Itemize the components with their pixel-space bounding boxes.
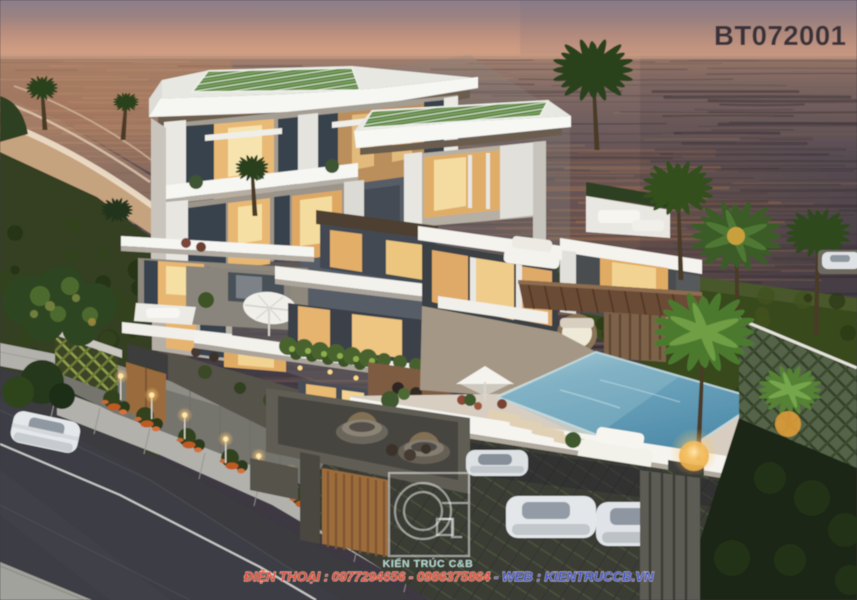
svg-text:ĐIỆN THOẠI : 0977294656 - 0986: ĐIỆN THOẠI : 0977294656 - 0986375864 - W… [244, 569, 654, 584]
svg-text:BT072001: BT072001 [714, 20, 846, 51]
